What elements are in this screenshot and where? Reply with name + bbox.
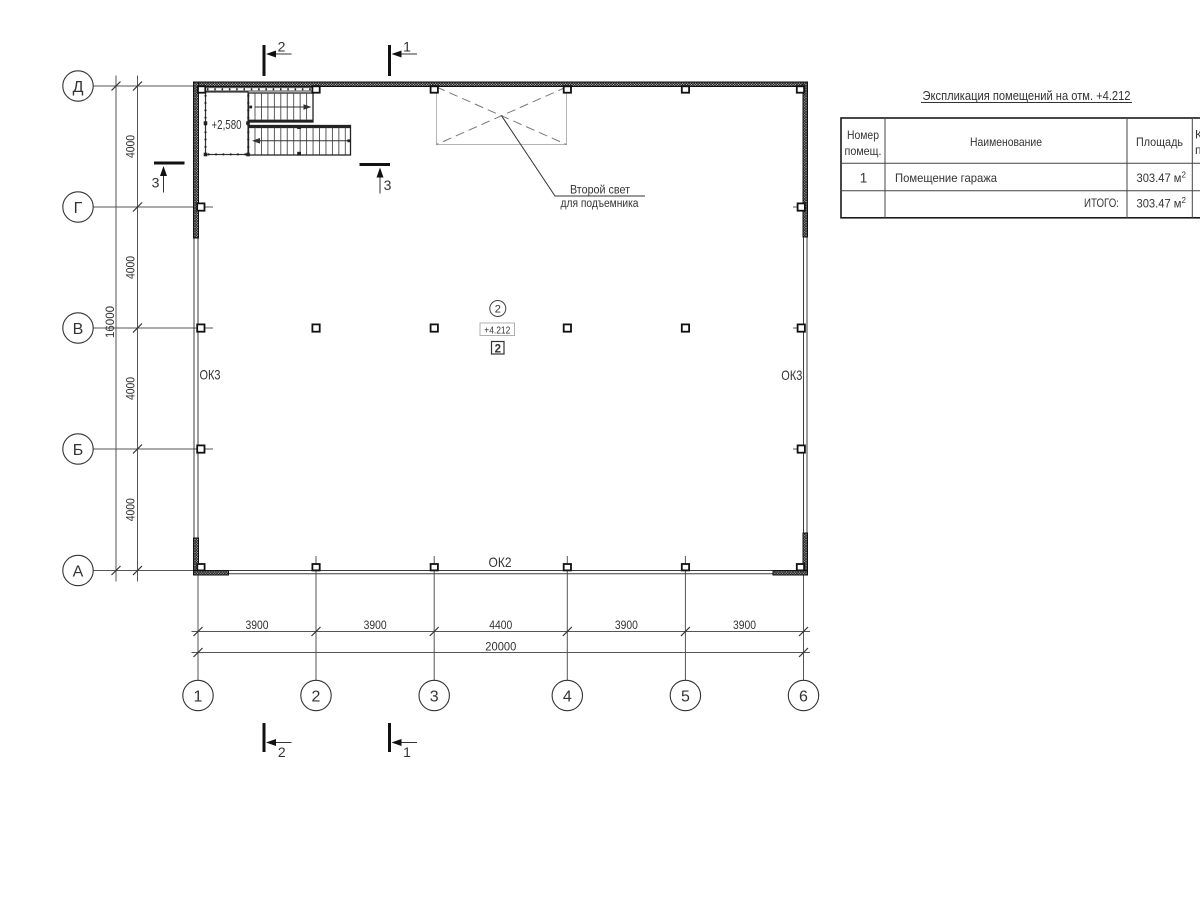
svg-text:2: 2 [312,688,321,705]
svg-text:Номер: Номер [847,128,879,142]
svg-text:Помещение гаража: Помещение гаража [895,171,997,185]
svg-text:3900: 3900 [733,618,756,632]
svg-text:2: 2 [495,304,501,316]
svg-text:ОК3: ОК3 [781,367,802,383]
svg-text:Б: Б [73,442,84,459]
svg-text:3: 3 [430,688,439,705]
svg-text:для подъемника: для подъемника [561,198,640,210]
svg-text:3: 3 [384,177,392,193]
svg-text:4400: 4400 [489,618,512,632]
svg-text:303.47 м2: 303.47 м2 [1137,196,1187,211]
svg-text:2: 2 [278,39,286,55]
svg-text:Наименование: Наименование [970,135,1042,149]
svg-text:Экспликация помещений на отм.: Экспликация помещений на отм. +4.212 [923,89,1131,103]
svg-text:1: 1 [860,170,868,185]
svg-text:2: 2 [495,343,501,355]
svg-text:16000: 16000 [103,306,117,338]
svg-text:Г: Г [74,200,83,217]
svg-text:2: 2 [278,744,286,760]
svg-text:Д: Д [73,79,84,96]
svg-text:20000: 20000 [485,639,516,653]
svg-text:3900: 3900 [615,618,638,632]
svg-text:3: 3 [152,175,160,191]
svg-text:В: В [73,321,84,338]
svg-text:пом.: пом. [1195,143,1200,157]
svg-text:ОК3: ОК3 [200,367,221,383]
svg-text:Кат.: Кат. [1195,128,1200,142]
svg-text:4000: 4000 [124,377,138,400]
svg-text:5: 5 [681,688,690,705]
svg-text:1: 1 [403,744,411,760]
svg-text:ИТОГО:: ИТОГО: [1084,196,1119,210]
svg-text:А: А [73,563,84,580]
svg-text:4000: 4000 [124,135,138,158]
svg-text:Площадь: Площадь [1136,135,1183,149]
svg-text:6: 6 [799,688,808,705]
svg-text:1: 1 [194,688,203,705]
svg-text:4000: 4000 [124,256,138,279]
svg-text:4000: 4000 [124,498,138,521]
svg-text:ОК2: ОК2 [489,554,512,570]
svg-text:+2,580: +2,580 [212,117,242,132]
svg-text:1: 1 [403,39,411,55]
svg-text:помещ.: помещ. [845,144,882,158]
svg-text:Второй свет: Второй свет [570,185,631,197]
svg-text:3900: 3900 [364,618,387,632]
svg-text:3900: 3900 [246,618,269,632]
svg-text:+4.212: +4.212 [484,326,510,337]
svg-text:4: 4 [563,688,572,705]
svg-text:303.47 м2: 303.47 м2 [1137,171,1187,186]
